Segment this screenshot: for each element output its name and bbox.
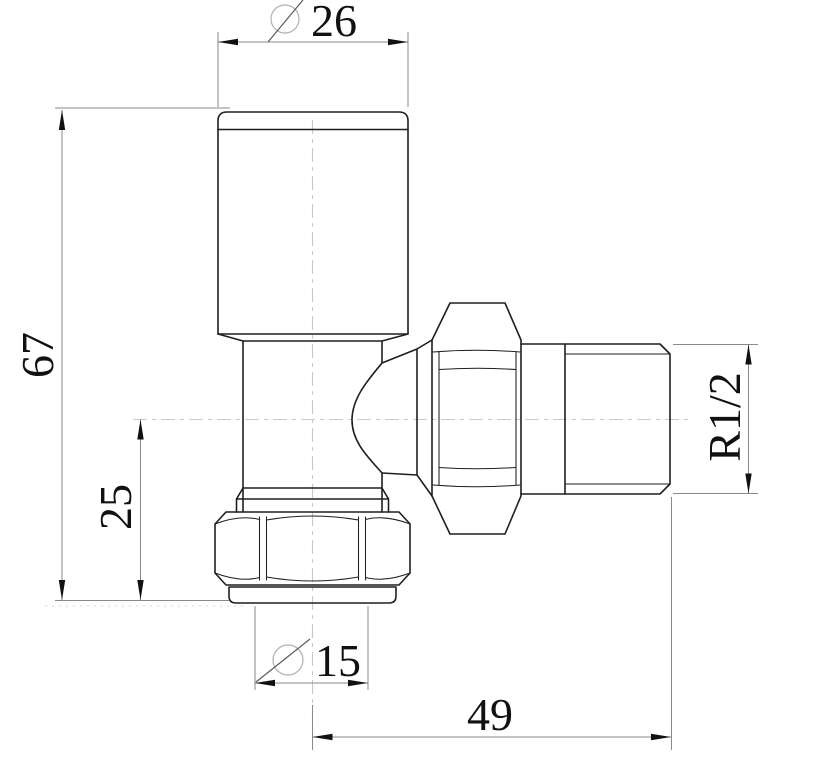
diameter-symbol (268, 0, 303, 42)
branch-cone (382, 340, 432, 496)
dimension-head-diameter: 26 (218, 0, 408, 107)
arrow-down (59, 580, 65, 600)
union-nut-facets (433, 350, 520, 487)
arrow-down (745, 474, 751, 494)
valve-technical-drawing: 26 67 25 15 49 (0, 0, 825, 783)
dim-value-axis-to-bottom: 25 (90, 484, 141, 530)
technical-drawing-page: 26 67 25 15 49 (0, 0, 825, 783)
arrow-right (388, 39, 408, 45)
diameter-symbol (256, 639, 310, 682)
arrow-up (137, 420, 143, 440)
arrow-down (137, 580, 143, 600)
dim-value-overall-length: 49 (467, 689, 513, 740)
dimension-overall-length: 49 (313, 497, 672, 750)
dim-value-pipe-diameter: 15 (315, 635, 361, 686)
arrow-left (313, 734, 333, 740)
dim-value-thread-size: R1/2 (699, 372, 750, 461)
valve-outline (215, 112, 670, 603)
arrow-up (59, 110, 65, 130)
dim-value-overall-height: 67 (12, 332, 63, 378)
extension-lines (55, 108, 230, 601)
arrow-up (745, 345, 751, 365)
dimension-axis-to-bottom: 25 (90, 420, 144, 601)
union-nut-outline (432, 303, 521, 534)
arrow-right (651, 734, 671, 740)
arrow-left (218, 39, 238, 45)
dimension-pipe-diameter: 15 (255, 606, 368, 690)
dim-value-head-diameter: 26 (311, 0, 357, 46)
